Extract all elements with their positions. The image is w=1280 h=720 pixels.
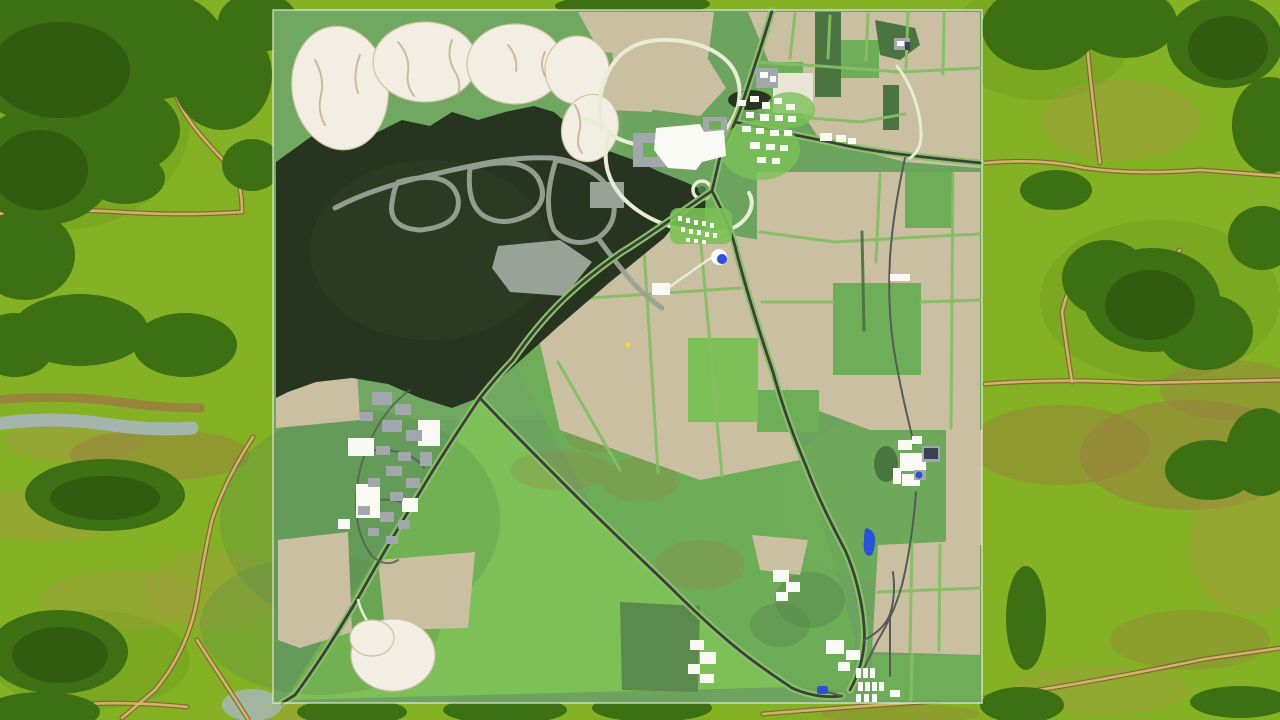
field-dark bbox=[883, 85, 899, 130]
field bbox=[946, 430, 982, 545]
solar-roof bbox=[924, 448, 938, 459]
map-screenshot bbox=[0, 0, 1280, 720]
pasture-mottle bbox=[750, 603, 810, 647]
quarry-lobe bbox=[373, 22, 477, 102]
north-farm-roof bbox=[905, 42, 910, 50]
tree-shadow bbox=[1105, 270, 1195, 340]
north-farm-shed bbox=[897, 41, 904, 46]
pond-small bbox=[817, 686, 828, 694]
field bbox=[872, 540, 980, 655]
tree-shadow bbox=[1188, 16, 1268, 80]
tree-shadow bbox=[50, 476, 160, 520]
field-green bbox=[688, 338, 758, 422]
tree-blob bbox=[1165, 440, 1255, 500]
field bbox=[752, 535, 808, 575]
tree-blob bbox=[85, 152, 165, 204]
hedgerow bbox=[862, 232, 864, 330]
field-green bbox=[841, 40, 879, 78]
field-green bbox=[905, 172, 953, 228]
sand-pit bbox=[350, 620, 394, 656]
tree-shadow bbox=[12, 627, 108, 683]
map-preview bbox=[200, 10, 982, 703]
factory-pad-court bbox=[709, 121, 721, 129]
tree-blob bbox=[1020, 170, 1092, 210]
tree-blob bbox=[1006, 566, 1046, 670]
dry-patch bbox=[1040, 80, 1200, 160]
marker-dot bbox=[626, 343, 631, 348]
water-tower bbox=[717, 254, 727, 264]
pond-dot bbox=[916, 472, 923, 479]
campsite-pad bbox=[670, 208, 732, 244]
field-green bbox=[872, 655, 980, 700]
field bbox=[378, 552, 475, 630]
field-green bbox=[833, 283, 921, 375]
tree-blob bbox=[133, 313, 237, 377]
field-dark bbox=[620, 602, 700, 692]
